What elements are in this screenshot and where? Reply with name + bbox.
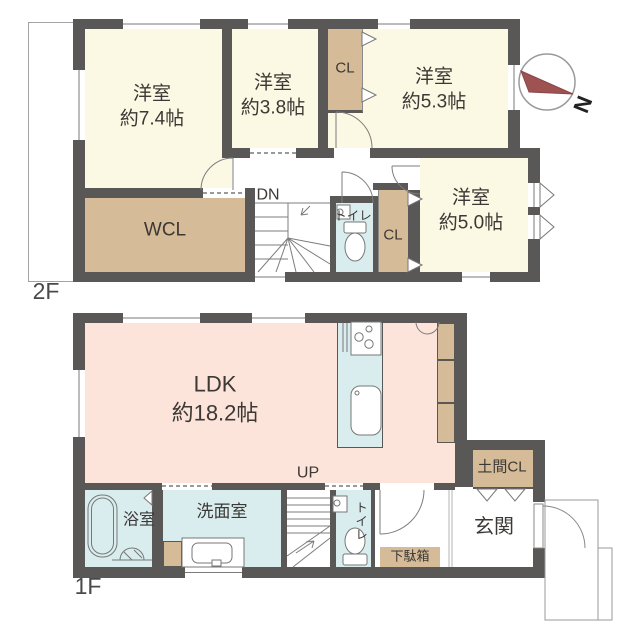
room-label: 洋室 約5.3帖 (402, 65, 466, 114)
washroom-label: 洗面室 (197, 501, 248, 523)
wall (373, 183, 408, 190)
wall (455, 440, 473, 487)
room-ldk (85, 323, 455, 483)
casement-window-icon (540, 183, 554, 239)
bath-label: 浴室 (123, 511, 155, 532)
wall (73, 567, 545, 578)
wall (330, 490, 336, 567)
balcony-outline (28, 22, 75, 282)
window (123, 19, 200, 29)
wall (371, 490, 375, 567)
wall (455, 313, 467, 450)
wall (222, 148, 250, 158)
toilet-label: トイレ (352, 501, 368, 542)
window (508, 65, 520, 110)
wall (533, 440, 545, 502)
wall (281, 490, 287, 567)
window (123, 313, 200, 323)
stairs-1f (287, 490, 330, 567)
kitchen-counter (337, 319, 383, 448)
doma-closet-label: 土間CL (477, 457, 526, 477)
room-name: 洋室 (439, 186, 503, 211)
closet-label: CL (383, 225, 402, 245)
window (185, 567, 242, 578)
room-label: 洋室 約3.8帖 (241, 71, 305, 120)
compass-north-label: N (566, 91, 598, 116)
floor-label-1f: 1F (75, 572, 102, 602)
window (528, 215, 540, 239)
wall (373, 196, 378, 272)
wall (296, 148, 334, 158)
room-label: 洋室 約7.4帖 (120, 82, 184, 131)
room-area: 約5.0帖 (439, 211, 503, 236)
entrance-door (534, 504, 585, 548)
ldk-closet-strip (437, 323, 455, 443)
entrance-label: 玄関 (474, 514, 514, 540)
wall (318, 19, 328, 158)
entrance-porch (545, 500, 612, 620)
wcl-label: WCL (144, 219, 186, 244)
shoe-cabinet-label: 下駄箱 (390, 549, 429, 566)
room-label: LDK 約18.2帖 (172, 370, 259, 427)
wall (370, 148, 540, 158)
wall (533, 548, 545, 578)
wall (330, 196, 373, 203)
window (462, 272, 490, 282)
stairs-dn-label: DN (256, 186, 279, 207)
closet-label: CL (335, 58, 354, 78)
toilet-label: トイレ (334, 208, 372, 224)
room-area: 約3.8帖 (241, 96, 305, 121)
wall (73, 313, 85, 578)
window (378, 19, 410, 29)
wall (222, 19, 232, 158)
wall (363, 483, 380, 490)
room-area: 約18.2帖 (172, 399, 259, 428)
floor-label-2f: 2F (33, 277, 60, 307)
floorplan: 洋室 約7.4帖 洋室 約3.8帖 CL 洋室 約5.3帖 WCL DN トイレ… (0, 0, 640, 640)
room-name: 洋室 (241, 71, 305, 96)
wall (245, 188, 255, 272)
room-label: 洋室 約5.0帖 (439, 186, 503, 235)
room-name: LDK (172, 370, 259, 399)
window (255, 272, 285, 282)
wall (73, 19, 85, 282)
wall (85, 188, 203, 198)
room-area: 約5.3帖 (402, 90, 466, 115)
room-area: 約7.4帖 (120, 107, 184, 132)
window (252, 313, 305, 323)
window (248, 19, 288, 29)
wall (85, 483, 162, 490)
room-name: 洋室 (120, 82, 184, 107)
washing-machine-space (163, 541, 182, 567)
wall (408, 190, 420, 272)
window (528, 183, 540, 207)
room-name: 洋室 (402, 65, 466, 90)
wall (434, 483, 455, 490)
stairs-up-label: UP (297, 464, 319, 485)
window (73, 370, 85, 437)
window (73, 70, 85, 140)
